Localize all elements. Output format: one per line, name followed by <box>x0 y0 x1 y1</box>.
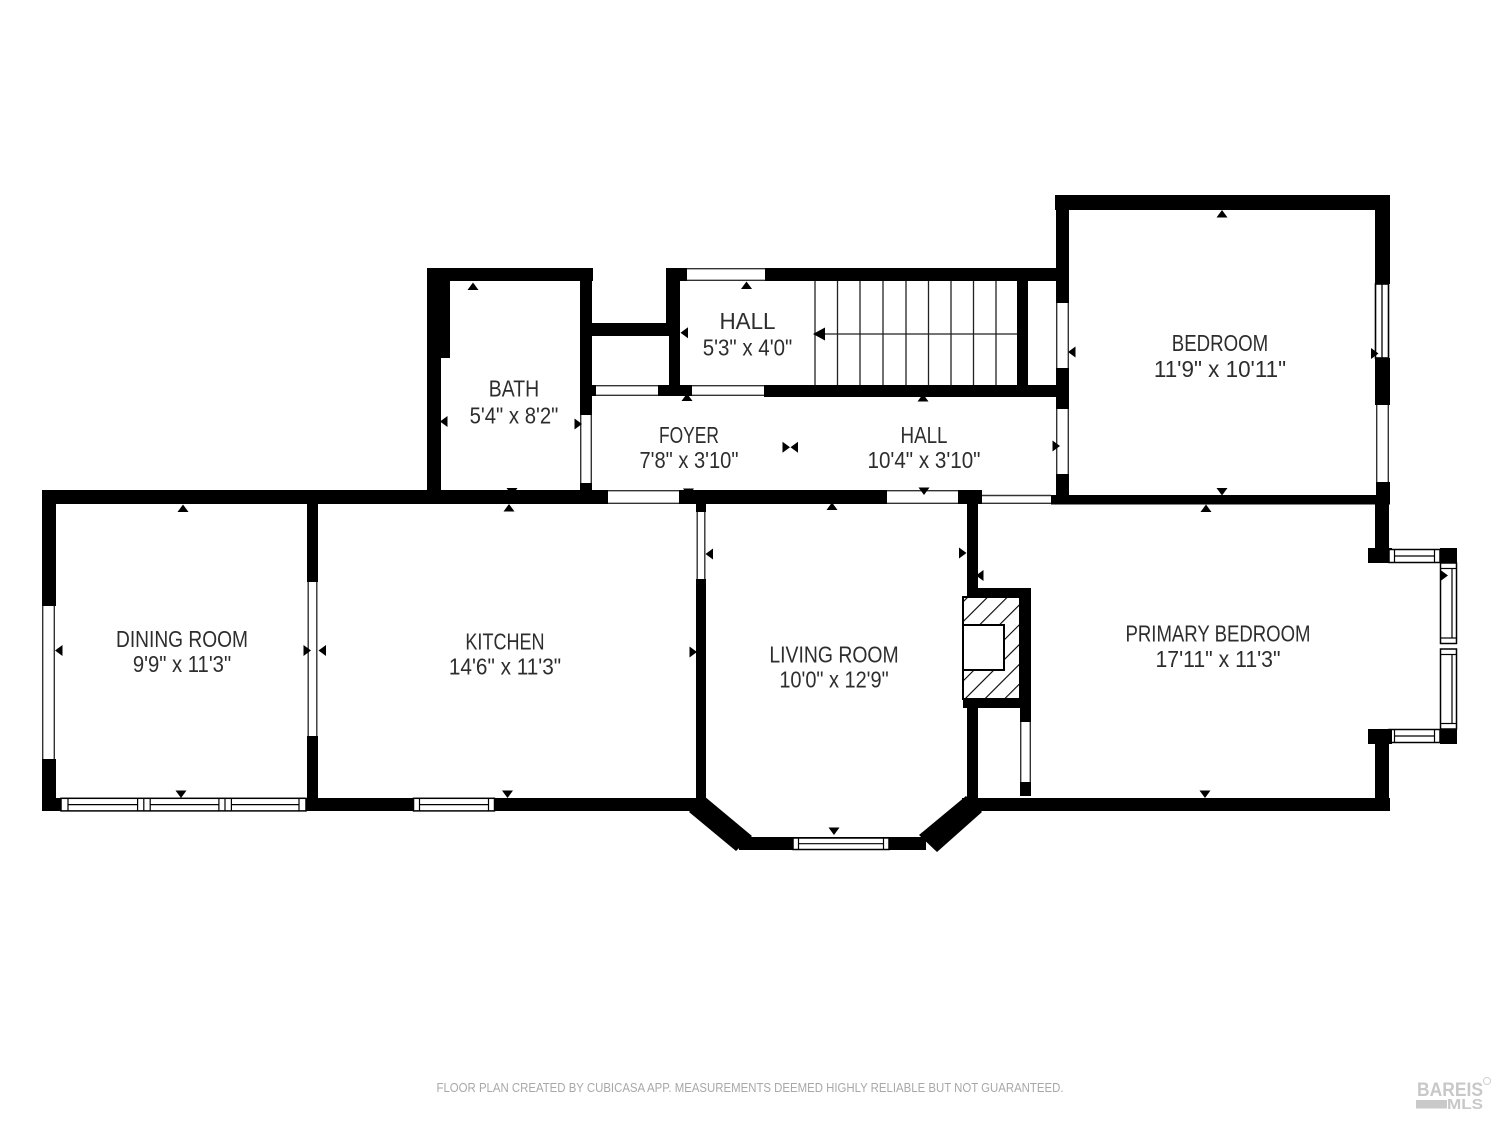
svg-text:FLOOR PLAN CREATED BY CUBICASA: FLOOR PLAN CREATED BY CUBICASA APP. MEAS… <box>437 1080 1064 1095</box>
svg-text:BEDROOM: BEDROOM <box>1172 330 1268 356</box>
svg-text:5'4" x 8'2": 5'4" x 8'2" <box>470 403 559 429</box>
svg-text:10'0" x 12'9": 10'0" x 12'9" <box>779 667 888 693</box>
svg-text:17'11" x 11'3": 17'11" x 11'3" <box>1156 646 1281 672</box>
svg-text:7'8" x 3'10": 7'8" x 3'10" <box>640 447 739 473</box>
svg-text:LIVING ROOM: LIVING ROOM <box>769 642 898 668</box>
svg-text:14'6" x 11'3": 14'6" x 11'3" <box>449 654 561 680</box>
svg-text:11'9" x 10'11": 11'9" x 10'11" <box>1154 356 1286 382</box>
svg-text:9'9" x 11'3": 9'9" x 11'3" <box>133 651 231 677</box>
svg-text:10'4" x 3'10": 10'4" x 3'10" <box>868 447 981 473</box>
svg-text:DINING ROOM: DINING ROOM <box>116 626 248 652</box>
svg-text:BATH: BATH <box>489 376 539 402</box>
svg-text:KITCHEN: KITCHEN <box>465 629 544 655</box>
svg-text:5'3" x 4'0": 5'3" x 4'0" <box>703 335 793 361</box>
svg-text:HALL: HALL <box>901 422 948 448</box>
svg-text:HALL: HALL <box>719 308 775 334</box>
svg-text:PRIMARY BEDROOM: PRIMARY BEDROOM <box>1126 621 1311 647</box>
svg-text:FOYER: FOYER <box>659 422 719 448</box>
svg-text:MLS: MLS <box>1447 1096 1483 1113</box>
